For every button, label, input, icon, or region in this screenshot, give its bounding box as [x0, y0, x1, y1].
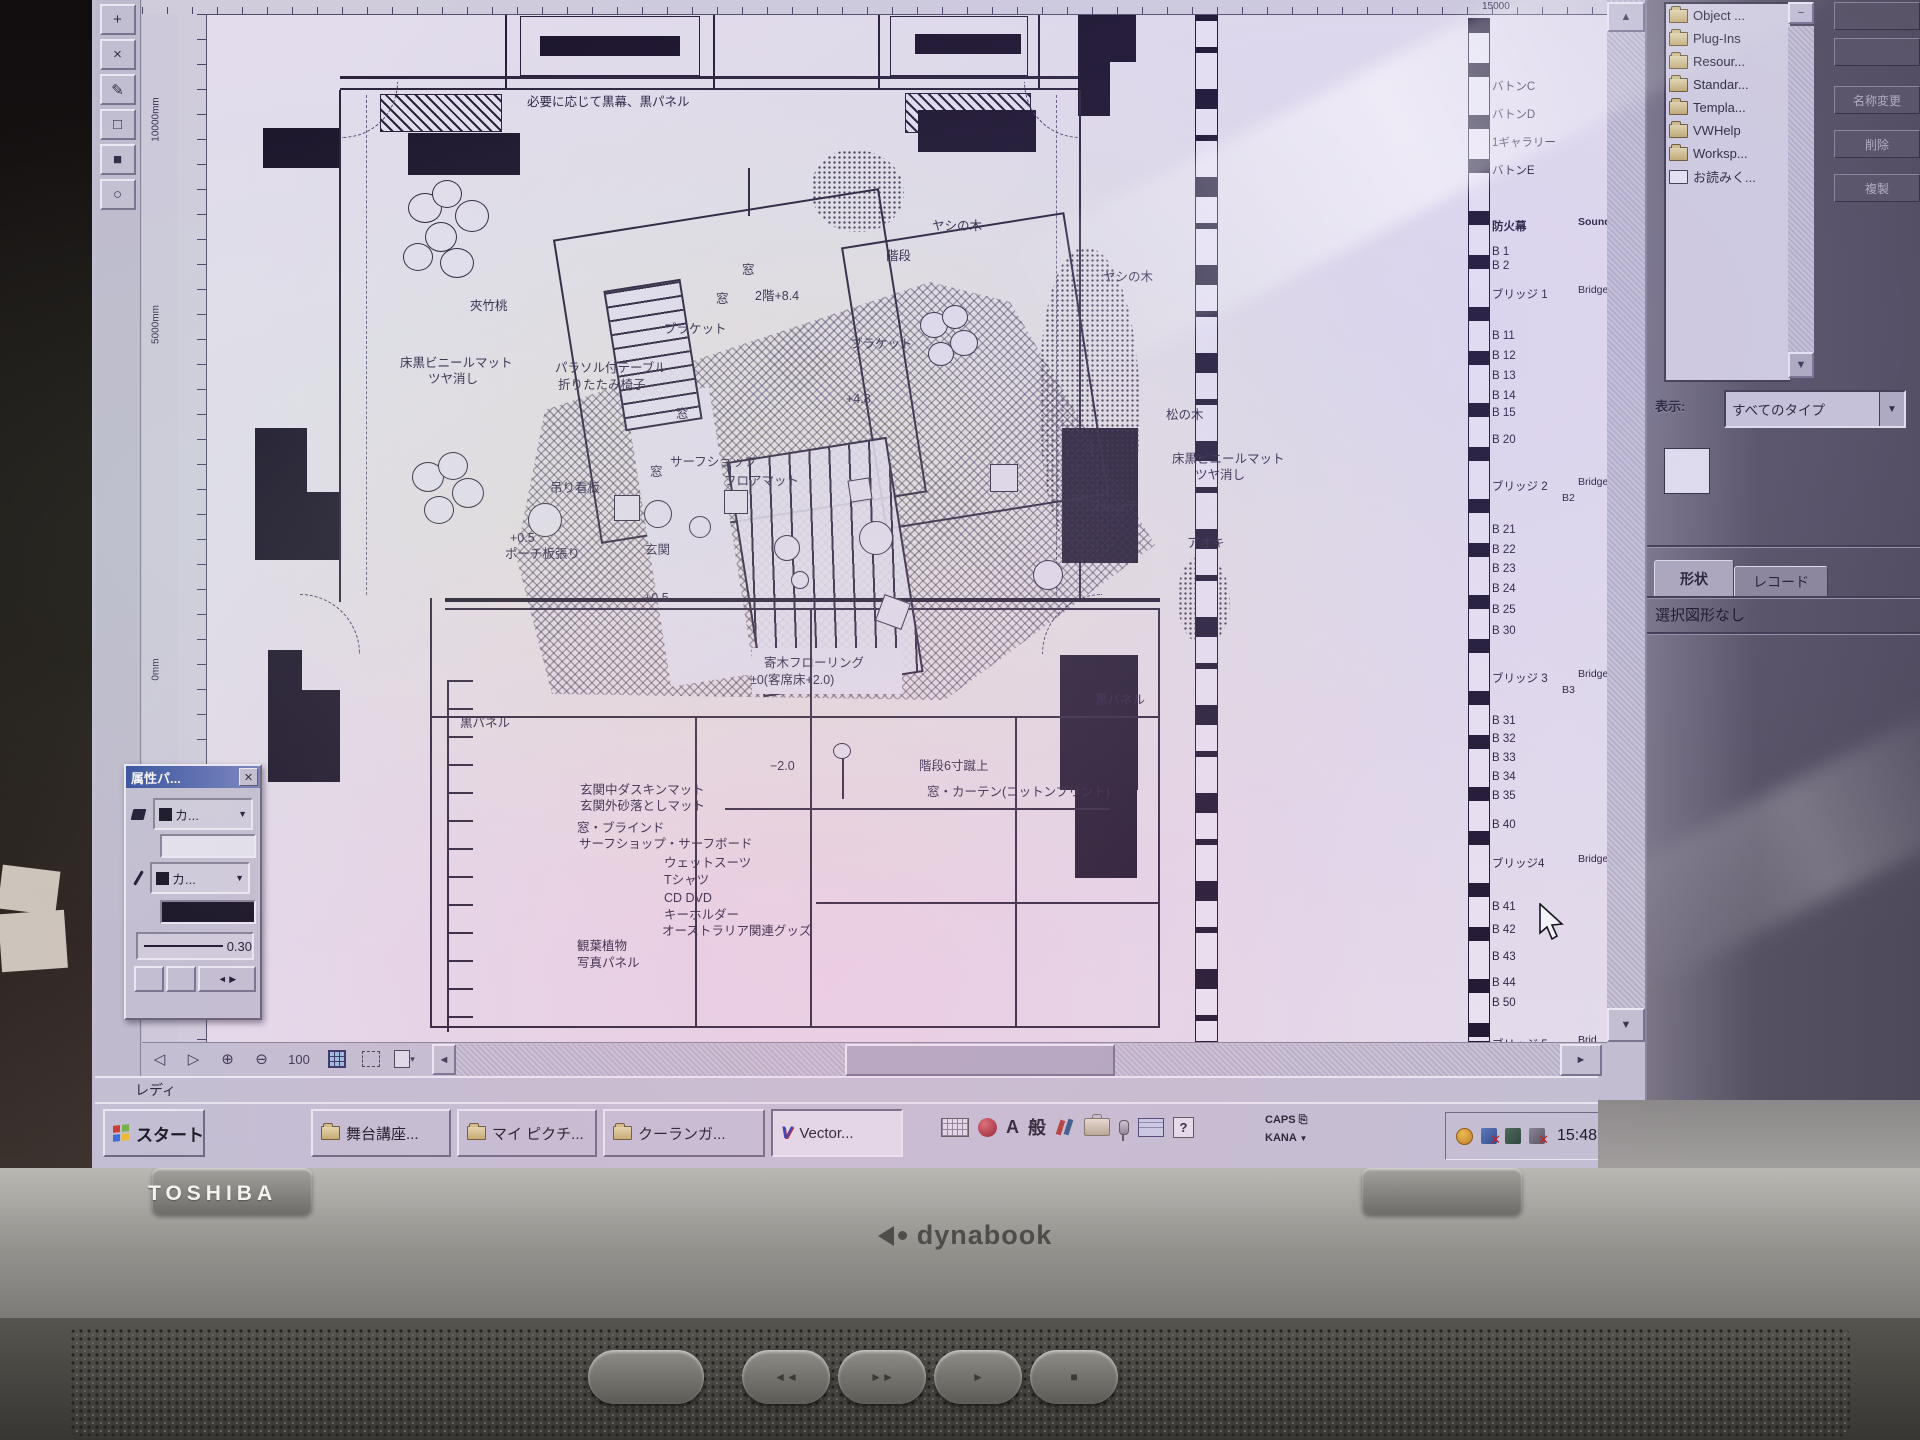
horizontal-scrollbar-thumb[interactable] — [845, 1044, 1115, 1076]
batten-label: B 33 — [1492, 752, 1607, 764]
pen-attribute-row: カ... ▼ — [132, 862, 250, 894]
batten-label: バトンC — [1492, 78, 1607, 94]
palette-option-button[interactable] — [134, 966, 164, 992]
status-text: レディ — [135, 1080, 176, 1100]
hscroll-right-button[interactable]: ► — [1560, 1044, 1602, 1076]
line-weight-value: 0.30 — [227, 939, 252, 954]
bottom-toolbar: ◁ ▷ ⊕ ⊖ 100 ▾ ◄ ► — [142, 1042, 1607, 1077]
batten-label: B 44 — [1492, 977, 1607, 989]
folder-icon — [467, 1126, 486, 1140]
media-button: ■ — [1030, 1350, 1118, 1404]
vectorworks-icon — [781, 1123, 792, 1143]
mouse-cursor — [1538, 903, 1566, 943]
fill-color-swatch — [159, 808, 172, 821]
taskbar: スタート 舞台講座...マイ ピクチ...クーランガ...Vector... A… — [95, 1102, 1598, 1168]
model-name: dynabook — [917, 1220, 1053, 1251]
zoom-level[interactable]: 100 — [279, 1044, 319, 1074]
batten-name: B 12 — [1492, 350, 1516, 362]
batten-name: B 21 — [1492, 524, 1516, 536]
taskbar-task[interactable]: Vector... — [771, 1109, 903, 1157]
background-paper — [0, 865, 60, 916]
microphone-icon[interactable] — [1119, 1120, 1129, 1135]
batten-label: B 1 — [1492, 246, 1607, 258]
batten-label: 1ギャラリー — [1492, 134, 1607, 150]
tool-button[interactable]: ○ — [100, 179, 136, 210]
batten-name: B 11 — [1492, 330, 1515, 342]
tab-label: レコード — [1753, 572, 1809, 592]
brush-icon[interactable] — [1055, 1118, 1075, 1137]
palette-title: 属性パ... — [131, 768, 181, 787]
batten-name-en: Bridge — [1578, 284, 1607, 296]
resource-preview — [1664, 448, 1710, 494]
fill-attribute-row: カ... ▼ — [132, 798, 253, 830]
batten-name: B 23 — [1492, 563, 1516, 575]
batten-name-en: Sound — [1578, 216, 1607, 228]
tab-record[interactable]: レコード — [1734, 566, 1828, 598]
batten-name: B 43 — [1492, 951, 1516, 963]
panel-divider — [1647, 545, 1920, 548]
hscroll-left-button[interactable]: ◄ — [432, 1044, 456, 1075]
batten-label: B 43 — [1492, 951, 1607, 963]
batten-label: B 13 — [1492, 370, 1607, 382]
chevron-down-icon: ▼ — [238, 809, 247, 819]
keyboard-icon[interactable] — [941, 1118, 969, 1137]
chevron-down-icon: ▼ — [1299, 1134, 1307, 1143]
status-bar: レディ — [95, 1076, 1598, 1102]
tool-button[interactable]: + — [100, 4, 136, 35]
display-filter-label: 表示: — [1655, 396, 1685, 415]
batten-name: B 20 — [1492, 434, 1516, 446]
ruler-value: 10000mm — [151, 90, 162, 150]
power-button — [588, 1350, 704, 1404]
batten-name: B 30 — [1492, 625, 1516, 637]
attribute-palette: 属性パ... ✕ カ... ▼ カ... ▼ — [124, 764, 262, 1020]
batten-label: B2 — [1562, 492, 1602, 504]
globe-icon[interactable] — [1456, 1128, 1473, 1145]
batten-name: ブリッジ4 — [1492, 858, 1544, 870]
caps-indicator: CAPS — [1265, 1114, 1296, 1126]
panel-button[interactable]: 削除 — [1834, 130, 1920, 158]
panel-divider — [1647, 632, 1920, 635]
batten-label: B 24 — [1492, 583, 1607, 595]
arrow-down-icon: ▼ — [1621, 1019, 1632, 1031]
right-hinge — [1362, 1168, 1522, 1214]
batten-name: ブリッジ 2 — [1492, 481, 1548, 493]
batten-name: B 34 — [1492, 771, 1516, 783]
layers-icon — [394, 1050, 410, 1068]
batten-label: B 23 — [1492, 563, 1607, 575]
batten-label: B 20 — [1492, 434, 1607, 446]
grid-icon — [328, 1050, 346, 1068]
taskbar-task[interactable]: マイ ピクチ... — [457, 1109, 597, 1157]
batten-name: B 41 — [1492, 901, 1516, 913]
batten-label: B 30 — [1492, 625, 1607, 637]
start-label: スタート — [136, 1121, 204, 1146]
arrow-up-icon: ▲ — [1621, 11, 1632, 23]
triangle-right-icon: ▷ — [188, 1050, 200, 1068]
palette-title-bar[interactable]: 属性パ... ✕ — [126, 766, 260, 788]
batten-name: 1ギャラリー — [1492, 137, 1556, 149]
tool-button[interactable]: ✎ — [100, 74, 136, 105]
batten-label: B 34 — [1492, 771, 1607, 783]
batten-label: バトンE — [1492, 162, 1607, 178]
batten-label: B 2 — [1492, 260, 1607, 272]
batten-label: B 11 — [1492, 330, 1607, 342]
batten-name: B 13 — [1492, 370, 1516, 382]
task-label: Vector... — [799, 1125, 853, 1142]
batten-label: B 31 — [1492, 715, 1607, 727]
messenger-icon[interactable]: ✕ — [1481, 1128, 1497, 1144]
system-tray: ✕ ✕ 15:48 — [1445, 1112, 1608, 1160]
batten-label: ブリッジ 1Bridge — [1492, 286, 1607, 302]
close-icon[interactable]: ✕ — [239, 768, 258, 786]
batten-name: ブリッジ 3 — [1492, 673, 1548, 685]
fill-color-bar[interactable] — [160, 834, 256, 858]
arrow-left-icon: ◄ — [439, 1054, 450, 1066]
pen-color-swatch — [156, 872, 169, 885]
folder-icon — [321, 1126, 340, 1140]
selection-mode-button[interactable] — [354, 1044, 387, 1074]
batten-name-en: Brid — [1578, 1034, 1597, 1042]
dynabook-dot-icon — [898, 1231, 907, 1240]
panel-button[interactable]: 名称変更 — [1834, 86, 1920, 114]
right-panel: Object ...Plug-InsResour...Standar...Tem… — [1645, 0, 1920, 1102]
question-mark: ? — [1180, 1120, 1188, 1135]
batten-name: B 31 — [1492, 715, 1516, 727]
task-label: 舞台講座... — [346, 1123, 419, 1144]
tool-button[interactable]: ■ — [100, 144, 136, 175]
batten-label: 防火幕Sound — [1492, 218, 1607, 234]
horizontal-ruler: 15000 — [142, 0, 1607, 15]
object-browser-buttons: 名称変更削除複製 — [1647, 0, 1920, 380]
batten-label: B 14 — [1492, 390, 1607, 402]
batten-name: B 33 — [1492, 752, 1516, 764]
batten-name: B 24 — [1492, 583, 1516, 595]
batten-name: 防火幕 — [1492, 221, 1527, 233]
dropdown-value: すべてのタイプ — [1732, 399, 1825, 419]
selection-status: 選択図形なし — [1655, 604, 1745, 625]
windows-logo-icon — [113, 1124, 129, 1142]
media-button: ►► — [838, 1350, 926, 1404]
tab-shape[interactable]: 形状 — [1654, 560, 1734, 598]
batten-name: B3 — [1562, 684, 1575, 696]
laptop-bezel: TOSHIBA dynabook — [0, 1168, 1920, 1318]
chevron-down-icon: ▼ — [1879, 392, 1904, 426]
offline-x-icon: ✕ — [1490, 1132, 1501, 1148]
tool-button[interactable]: □ — [100, 109, 136, 140]
tool-button[interactable]: × — [100, 39, 136, 70]
line-weight-stepper[interactable]: ◄ ▶ — [198, 966, 256, 992]
batten-name: ブリッジ 1 — [1492, 289, 1548, 301]
zoom-out-icon: ⊖ — [255, 1050, 268, 1068]
batten-name: B 25 — [1492, 604, 1516, 616]
batten-label: バトンD — [1492, 106, 1607, 122]
page-next-button[interactable]: ▷ — [177, 1044, 210, 1074]
grid-toggle-button[interactable] — [320, 1044, 353, 1074]
batten-name-en: Bridge — [1578, 476, 1607, 488]
batten-label: B 50 — [1492, 997, 1607, 1009]
ime-conversion-mode[interactable]: 般 — [1028, 1114, 1046, 1140]
dynabook-logo: dynabook — [0, 1220, 1920, 1251]
triangle-left-icon: ◁ — [154, 1050, 166, 1068]
batten-name: B 32 — [1492, 733, 1516, 745]
panel-button[interactable] — [1834, 2, 1920, 30]
ime-lock-indicators[interactable]: CAPS ⎘ KANA ▼ — [1265, 1112, 1307, 1147]
scroll-down-button[interactable]: ▼ — [1607, 1008, 1645, 1042]
batten-label: B 32 — [1492, 733, 1607, 745]
ruler-value: 0mm — [151, 640, 162, 700]
chevron-down-icon: ▼ — [235, 873, 244, 883]
batten-name: B 22 — [1492, 544, 1516, 556]
batten-label: B 12 — [1492, 350, 1607, 362]
zoom-out-button[interactable]: ⊖ — [245, 1044, 278, 1074]
folder-icon — [613, 1126, 632, 1140]
media-button: ► — [934, 1350, 1022, 1404]
batten-label: B 40 — [1492, 819, 1607, 831]
panel-button[interactable] — [1834, 38, 1920, 66]
photo-of-laptop: 必要に応じて黒幕、黒パネルヤシの木階段窓窓2階+8.4夾竹桃ブラケットブラケット… — [0, 0, 1920, 1440]
panel-button[interactable]: 複製 — [1834, 174, 1920, 202]
background-paper — [0, 910, 68, 972]
line-weight-preview — [144, 945, 223, 947]
pen-icon — [133, 870, 144, 885]
palette-option-button[interactable] — [166, 966, 196, 992]
chevron-down-icon: ▾ — [410, 1054, 415, 1065]
batten-name: B 40 — [1492, 819, 1516, 831]
ime-input-mode[interactable]: A — [1006, 1117, 1019, 1138]
batten-label: B 21 — [1492, 524, 1607, 536]
tab-label: 形状 — [1680, 569, 1708, 589]
taskbar-task[interactable]: クーランガ... — [603, 1109, 765, 1157]
type-filter-dropdown[interactable]: すべてのタイプ ▼ — [1724, 390, 1906, 428]
zoom-in-button[interactable]: ⊕ — [211, 1044, 244, 1074]
scroll-up-button[interactable]: ▲ — [1607, 2, 1645, 32]
muted-x-icon: ✕ — [1538, 1132, 1549, 1148]
ime-toolbar: A 般 ? — [941, 1114, 1194, 1140]
batten-name: バトンE — [1492, 165, 1535, 177]
ruler-value: 15000 — [1482, 1, 1510, 12]
batten-name: B 35 — [1492, 790, 1516, 802]
batten-label: B 15 — [1492, 407, 1607, 419]
fill-style-dropdown[interactable]: カ... ▼ — [153, 798, 253, 830]
ime-ball-icon[interactable] — [978, 1118, 997, 1137]
laptop-deck: ◄◄►►►■ — [0, 1318, 1920, 1440]
media-button: ◄◄ — [742, 1350, 830, 1404]
batten-name: B 14 — [1492, 390, 1516, 402]
batten-label: B3 — [1562, 684, 1602, 696]
help-icon[interactable]: ? — [1173, 1117, 1194, 1138]
taskbar-task[interactable]: 舞台講座... — [311, 1109, 451, 1157]
batten-name: B 44 — [1492, 977, 1516, 989]
batten-name-en: Bridge — [1578, 853, 1607, 865]
batten-label: B 35 — [1492, 790, 1607, 802]
layer-options-button[interactable]: ▾ — [388, 1044, 421, 1074]
fill-bucket-icon — [131, 809, 147, 820]
batten-name: B2 — [1562, 492, 1575, 504]
batten-name-en: Bridge — [1578, 668, 1607, 680]
stepper-arrows-icon: ◄ ▶ — [218, 974, 236, 985]
batten-name: B 1 — [1492, 246, 1509, 258]
network-icon[interactable] — [1505, 1128, 1521, 1144]
toolbox-icon[interactable] — [1084, 1118, 1110, 1136]
volume-muted-icon[interactable]: ✕ — [1529, 1128, 1545, 1144]
ime-pad-icon[interactable] — [1138, 1118, 1164, 1137]
dropdown-value: カ... — [172, 869, 196, 888]
dropdown-value: カ... — [175, 805, 199, 824]
batten-label: B 25 — [1492, 604, 1607, 616]
toshiba-logo: TOSHIBA — [148, 1182, 277, 1206]
batten-name: B 15 — [1492, 407, 1516, 419]
arrow-right-icon: ► — [1576, 1054, 1587, 1066]
batten-name: B 2 — [1492, 260, 1509, 272]
batten-name: B 42 — [1492, 924, 1516, 936]
batten-name: バトンD — [1492, 109, 1535, 121]
page-prev-button[interactable]: ◁ — [143, 1044, 176, 1074]
ruler-value: 5000mm — [151, 295, 162, 355]
start-button[interactable]: スタート — [103, 1109, 205, 1157]
kana-indicator: KANA — [1265, 1132, 1296, 1144]
zoom-in-icon: ⊕ — [221, 1050, 234, 1068]
batten-label: B 22 — [1492, 544, 1607, 556]
panel-divider — [1647, 596, 1920, 599]
dynabook-mark-icon — [868, 1226, 894, 1246]
batten-name: バトンC — [1492, 81, 1535, 93]
batten-label: ブリッジ4Bridge — [1492, 855, 1607, 871]
pen-color-bar[interactable] — [160, 900, 256, 924]
vertical-scrollbar[interactable] — [1607, 0, 1645, 1042]
line-weight-field[interactable]: 0.30 — [136, 932, 254, 960]
taskbar-clock[interactable]: 15:48 — [1557, 1127, 1597, 1145]
photo-dark-edge — [0, 0, 92, 1168]
task-label: クーランガ... — [638, 1123, 726, 1144]
task-label: マイ ピクチ... — [492, 1123, 584, 1144]
batten-name: B 50 — [1492, 997, 1516, 1009]
laptop-screen: 必要に応じて黒幕、黒パネルヤシの木階段窓窓2階+8.4夾竹桃ブラケットブラケット… — [0, 0, 1920, 1168]
bezel-corner — [1598, 1100, 1920, 1168]
pen-style-dropdown[interactable]: カ... ▼ — [150, 862, 250, 894]
marquee-icon — [362, 1051, 380, 1067]
